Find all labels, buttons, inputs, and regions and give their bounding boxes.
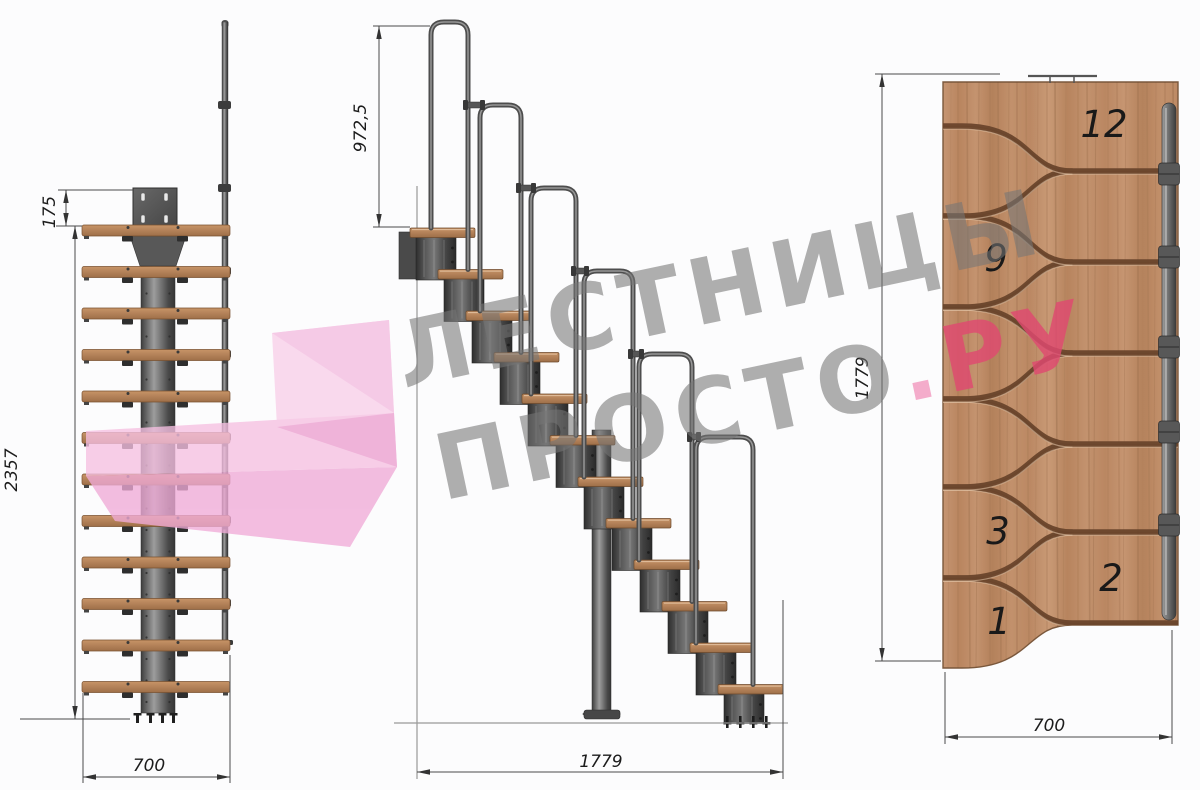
step-number-3: 3 bbox=[986, 510, 1010, 553]
dim-label-1779-plan: 1779 bbox=[853, 356, 873, 399]
plan-view-drawing bbox=[875, 74, 1180, 744]
step-number-1: 1 bbox=[987, 600, 1011, 643]
front-view-drawing bbox=[20, 20, 233, 783]
drawing-canvas: 12 9 3 2 1 175 2357 700 972,5 1779 1779 … bbox=[0, 0, 1200, 790]
step-number-12: 12 bbox=[1080, 103, 1127, 146]
dim-label-175: 175 bbox=[40, 196, 60, 228]
step-number-9: 9 bbox=[984, 237, 1008, 280]
step-number-2: 2 bbox=[1099, 557, 1123, 600]
dim-label-1779-side: 1779 bbox=[579, 752, 622, 772]
dim-label-700-front: 700 bbox=[133, 756, 165, 776]
dim-label-2357: 2357 bbox=[2, 448, 22, 491]
dim-label-972-5: 972,5 bbox=[351, 104, 371, 153]
side-view-drawing bbox=[373, 22, 788, 779]
dim-label-700-plan: 700 bbox=[1033, 716, 1065, 736]
stair-technical-drawing-page: 12 9 3 2 1 175 2357 700 972,5 1779 1779 … bbox=[0, 0, 1200, 790]
